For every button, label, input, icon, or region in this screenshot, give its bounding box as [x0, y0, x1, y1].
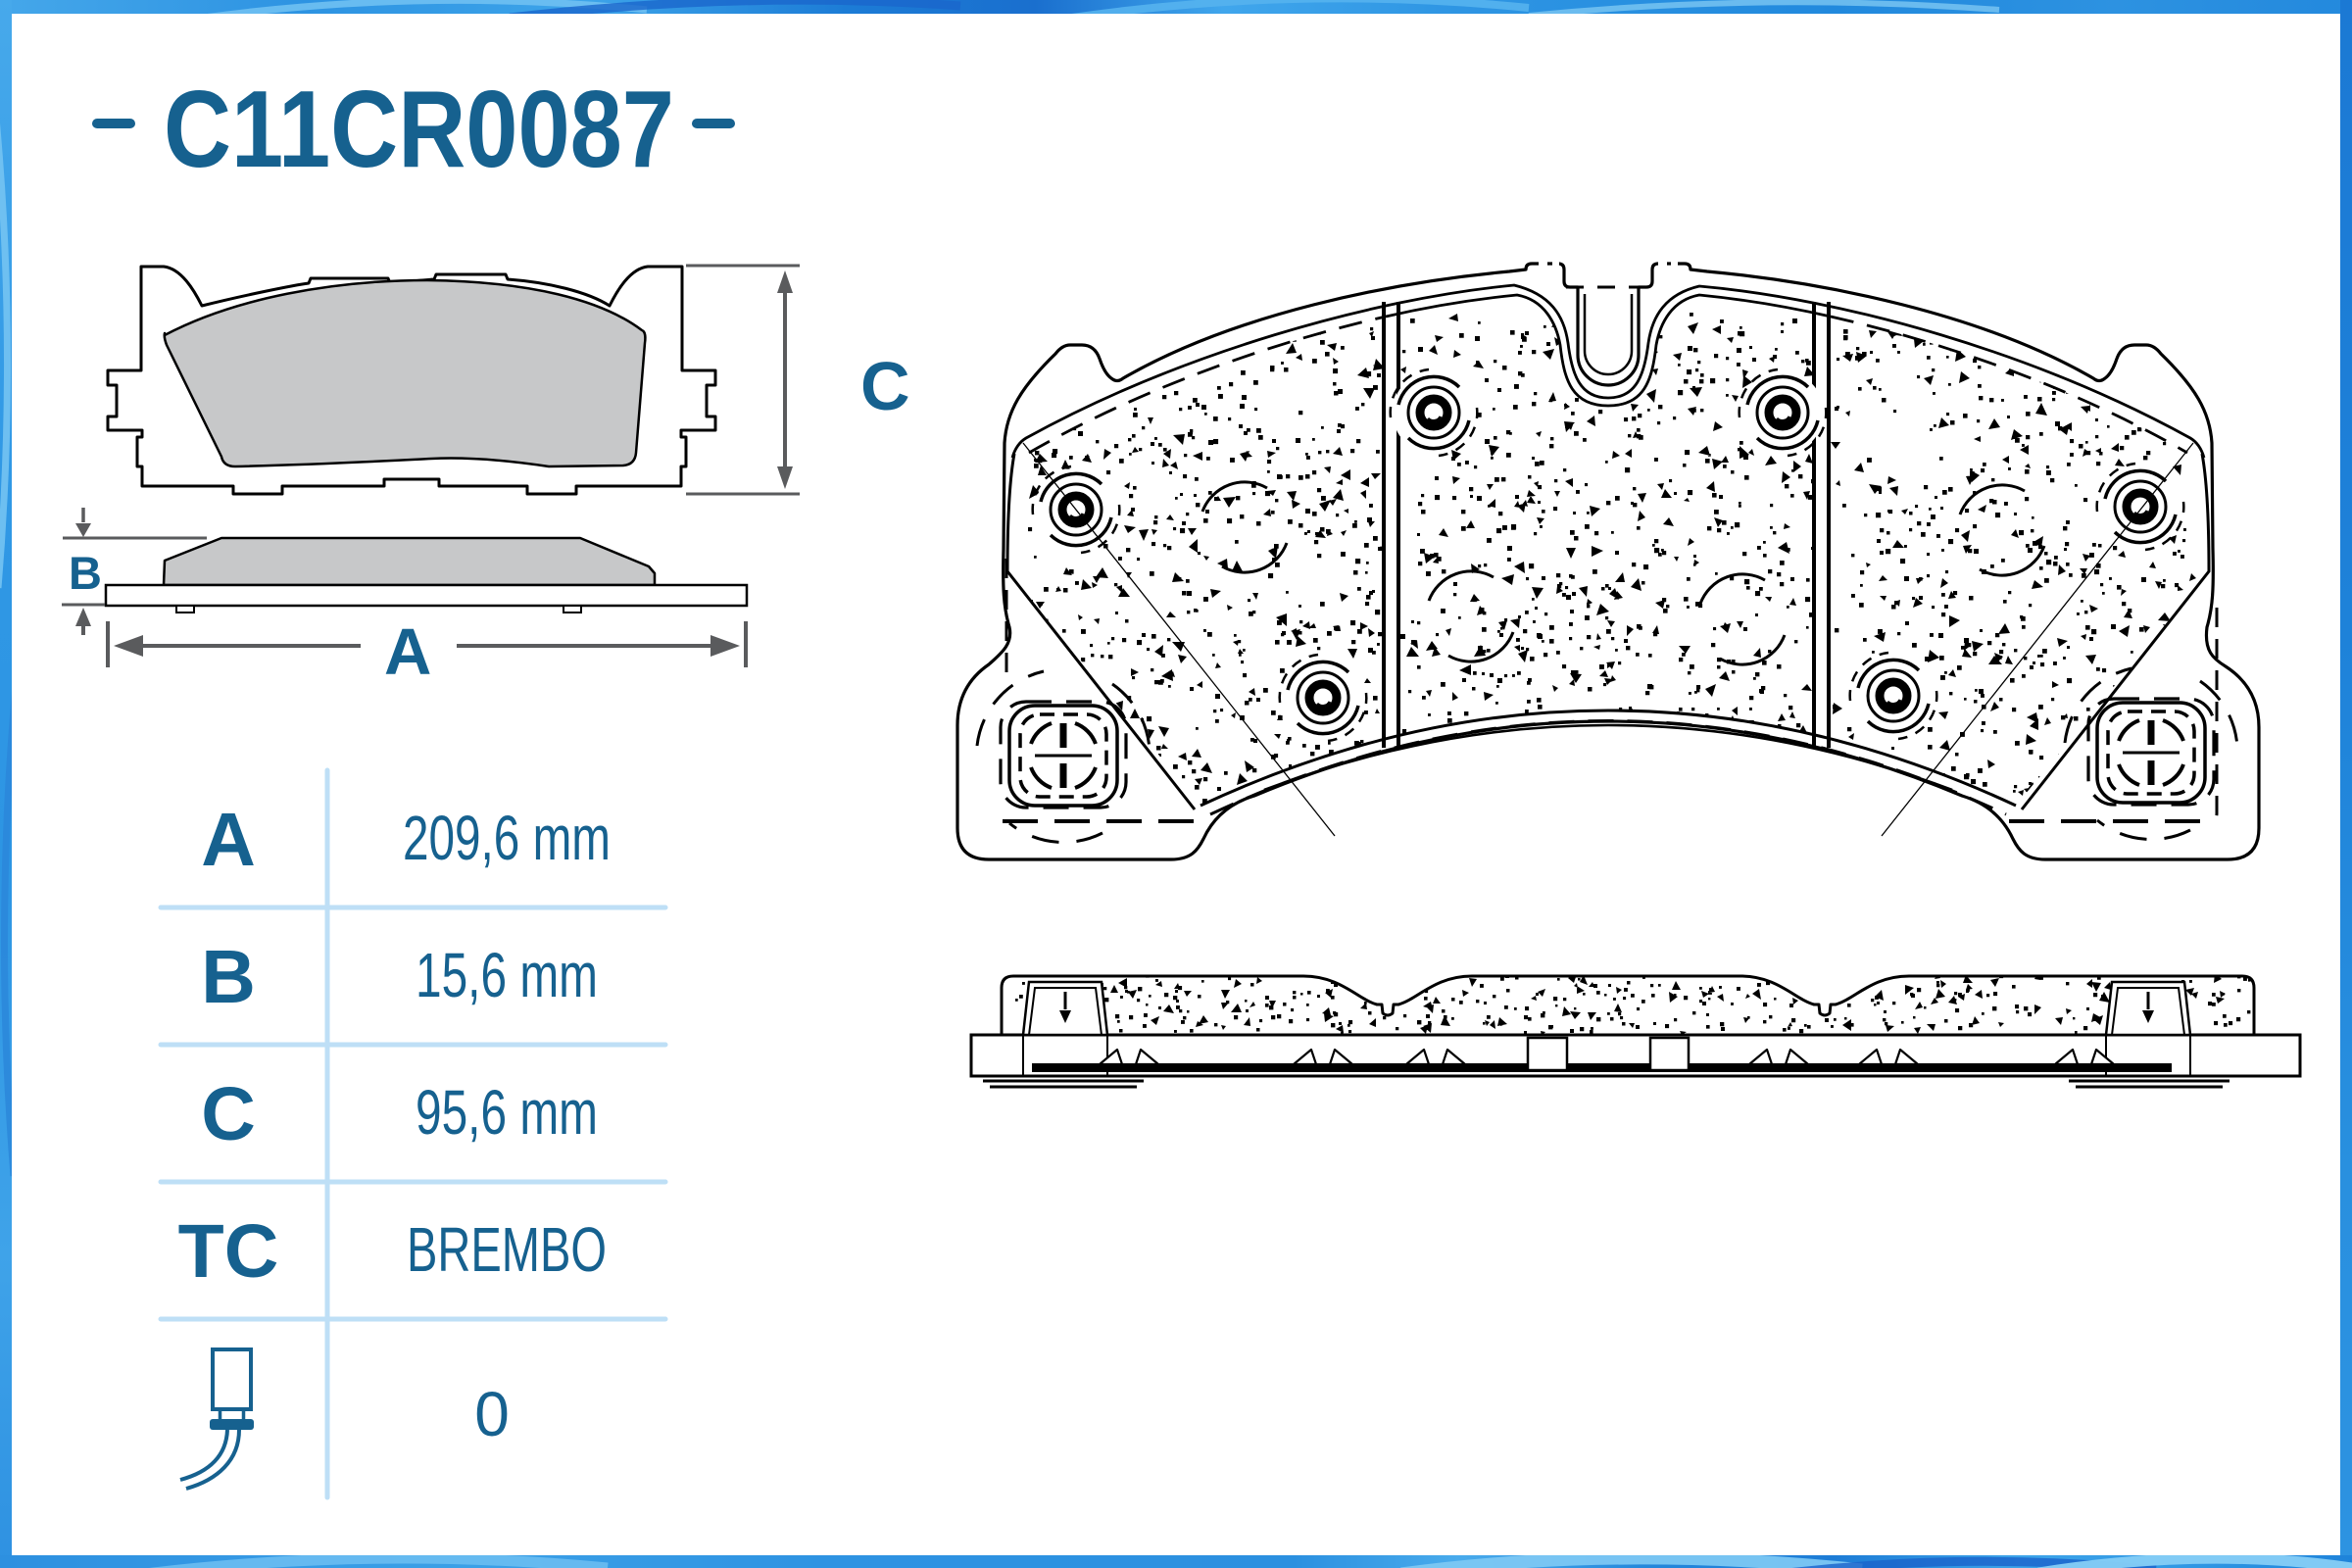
- svg-text:TC: TC: [178, 1209, 279, 1294]
- svg-text:0: 0: [474, 1379, 510, 1449]
- svg-text:C: C: [201, 1072, 256, 1156]
- svg-text:C11CR0087: C11CR0087: [164, 69, 674, 190]
- svg-text:B: B: [201, 935, 256, 1019]
- svg-text:C: C: [860, 348, 910, 424]
- svg-text:B: B: [69, 547, 102, 599]
- svg-text:209,6 mm: 209,6 mm: [403, 803, 611, 873]
- svg-text:95,6 mm: 95,6 mm: [416, 1077, 598, 1148]
- svg-text:15,6 mm: 15,6 mm: [416, 940, 598, 1010]
- svg-text:BREMBO: BREMBO: [407, 1214, 607, 1285]
- svg-text:A: A: [201, 798, 256, 882]
- svg-text:A: A: [384, 615, 431, 689]
